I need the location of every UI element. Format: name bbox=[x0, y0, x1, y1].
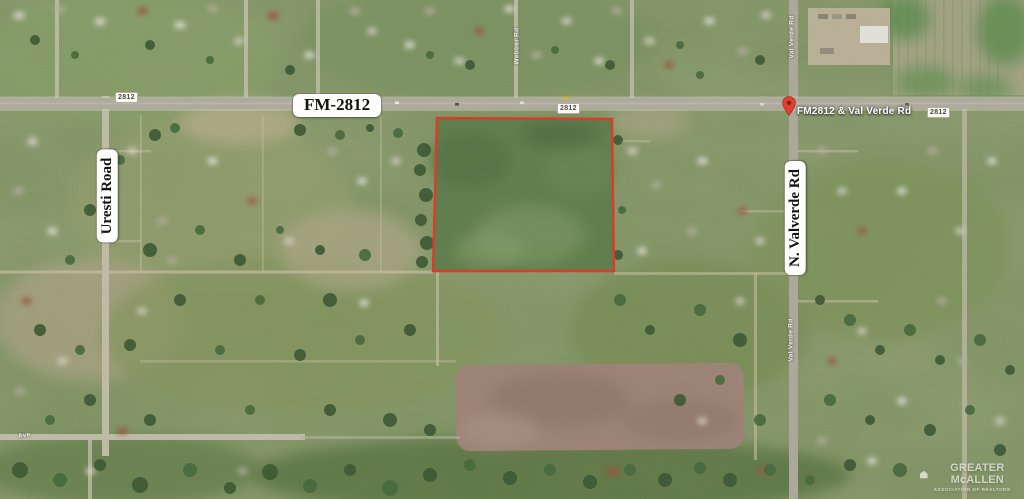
minor-label-val-verde-top: Val Verde Rd bbox=[789, 16, 796, 59]
aerial-map-screenshot: FM-2812 2812 2812 2812 Uresti Road N. Va… bbox=[0, 0, 1024, 499]
route-shield-2812-left: 2812 bbox=[115, 92, 138, 103]
route-shield-2812-center: 2812 bbox=[557, 103, 580, 114]
satellite-terrain bbox=[0, 0, 1024, 499]
pin-label: FM2812 & Val Verde Rd bbox=[797, 106, 911, 117]
watermark: GREATER McALLEN ASSOCIATION OF REALTORS bbox=[920, 462, 1024, 492]
minor-label-val-verde-mid: Val Verde Rd bbox=[788, 319, 795, 362]
road-label-fm2812: FM-2812 bbox=[293, 94, 381, 117]
minor-label-webber-rd: Webber Rd bbox=[514, 28, 521, 65]
route-shield-2812-right: 2812 bbox=[927, 107, 950, 118]
road-label-uresti-road: Uresti Road bbox=[97, 150, 118, 243]
watermark-line2: ASSOCIATION OF REALTORS bbox=[920, 487, 1024, 492]
road-label-n-valverde-rd: N. Valverde Rd bbox=[785, 161, 806, 275]
watermark-line1: GREATER McALLEN bbox=[931, 462, 1024, 486]
map-pin-icon bbox=[782, 96, 796, 116]
watermark-logo-icon bbox=[920, 470, 928, 479]
